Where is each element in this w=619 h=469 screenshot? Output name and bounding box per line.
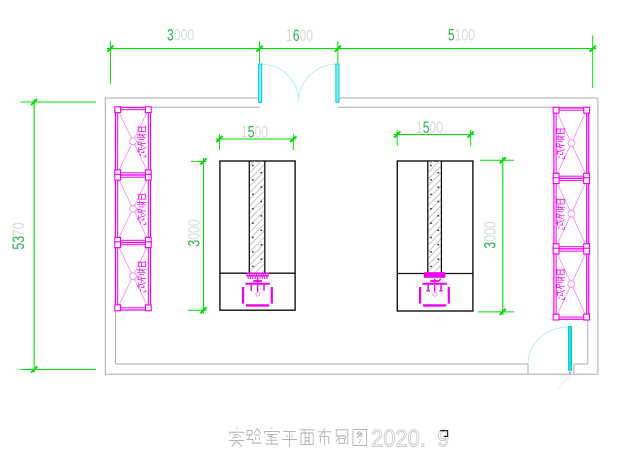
svg-text:1500: 1500: [416, 119, 443, 137]
svg-text:3000: 3000: [482, 221, 500, 248]
svg-text:3000: 3000: [167, 27, 194, 45]
svg-text:5100: 5100: [448, 27, 475, 45]
svg-text:3000: 3000: [186, 219, 204, 246]
svg-text:2020.: 2020.: [371, 426, 426, 453]
svg-text:5370: 5370: [10, 222, 28, 249]
svg-text:1600: 1600: [286, 27, 313, 45]
svg-text:9: 9: [438, 426, 450, 453]
svg-text:1500: 1500: [241, 124, 268, 142]
